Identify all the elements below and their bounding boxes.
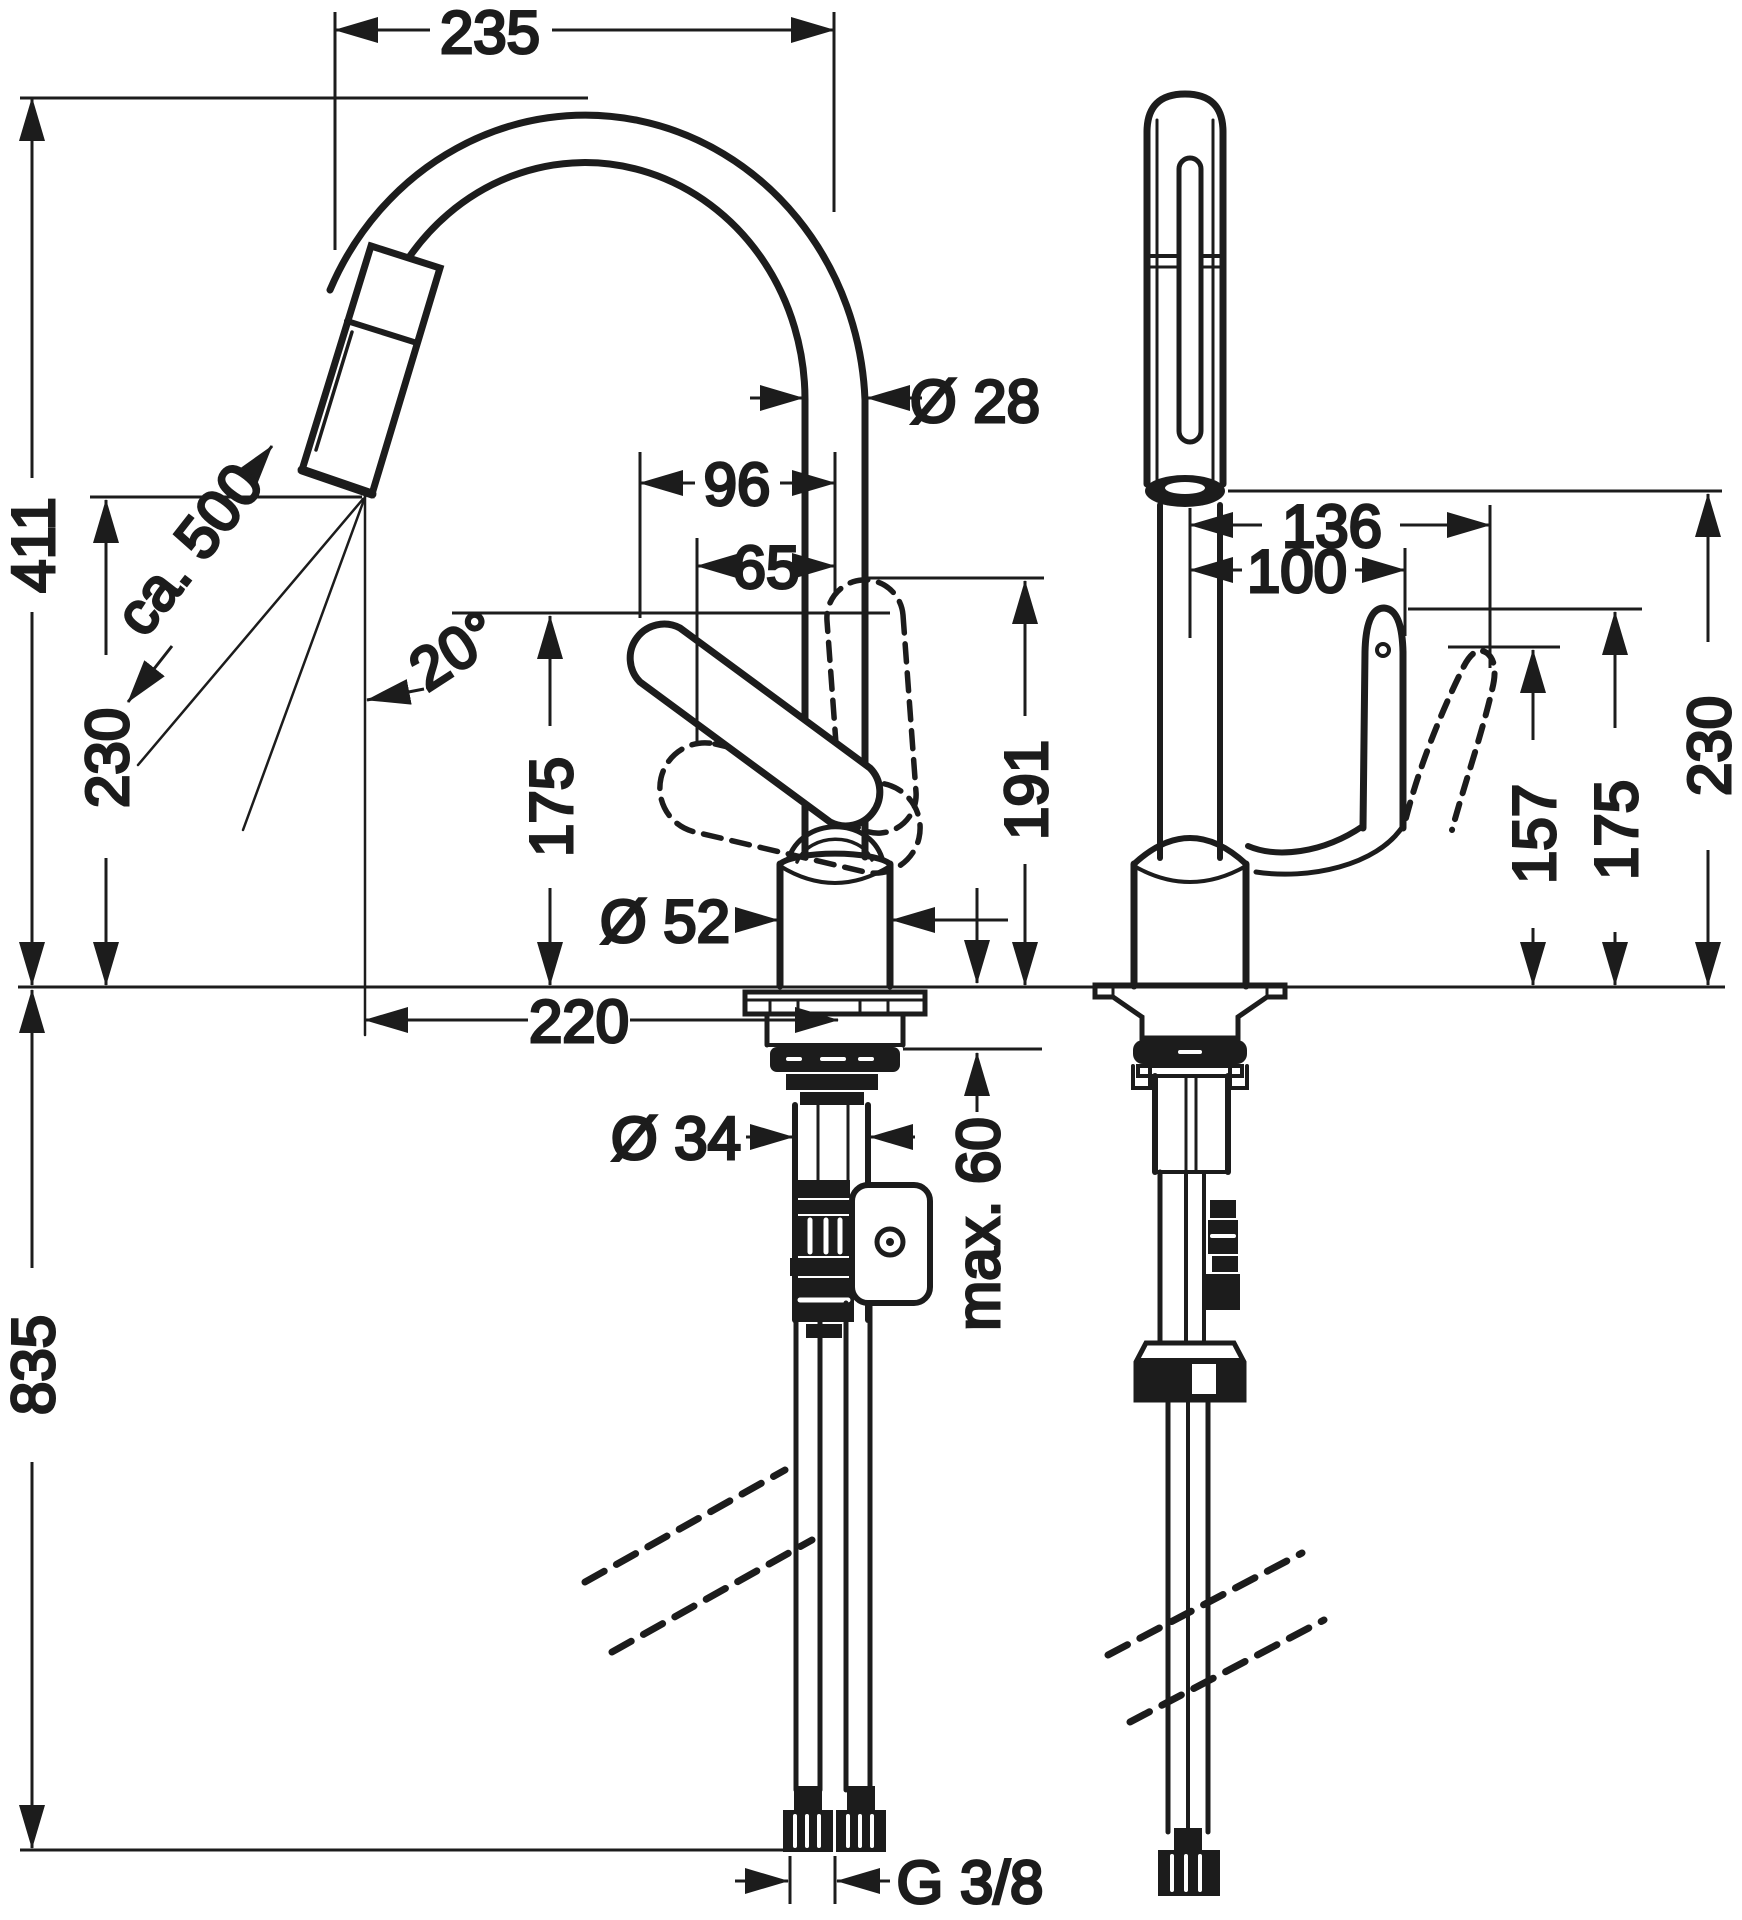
dim-shank-diameter-label: Ø 34: [611, 1105, 741, 1172]
flange-plate: [745, 992, 925, 1014]
dim-total-height: 411: [0, 98, 588, 985]
dim-175-front-label: 175: [518, 757, 585, 857]
side-handle-dashed: [1406, 651, 1495, 830]
dim-191: 191: [866, 578, 1060, 985]
dim-230-side-label: 230: [1676, 696, 1742, 796]
dim-body-diameter: Ø 52: [600, 888, 1008, 955]
technical-drawing-page: 235 411 230 ca. 500 20°: [0, 0, 1742, 1920]
dim-hose-length: ca. 500: [102, 446, 276, 702]
dim-835-label: 835: [0, 1315, 67, 1415]
dim-100-label: 100: [1247, 538, 1347, 605]
mounting-nut: [786, 1074, 878, 1090]
body-cap-arc: [780, 866, 890, 883]
break-line: [1130, 1620, 1324, 1722]
dim-hose-length-label: ca. 500: [102, 451, 276, 647]
dim-175-side-label: 175: [1583, 780, 1650, 880]
dim-thread-label: G 3/8: [897, 1849, 1044, 1916]
dim-96-label: 96: [704, 451, 771, 518]
dim-outlet-height: 230: [74, 497, 362, 985]
side-flange: [1095, 985, 1285, 1038]
dim-body-diameter-label: Ø 52: [600, 888, 730, 955]
spray-angle-line: [243, 497, 365, 830]
side-view: [1095, 94, 1495, 1896]
spray-head: [302, 246, 440, 494]
dim-spout-diameter: Ø 28: [750, 368, 1040, 435]
dim-spout-diameter-label: Ø 28: [910, 368, 1040, 435]
dim-total-height-label: 411: [0, 497, 67, 593]
break-line: [585, 1470, 785, 1582]
dim-65-label: 65: [733, 534, 800, 601]
front-view: [138, 115, 930, 1852]
break-line: [1108, 1553, 1302, 1655]
break-line: [612, 1540, 812, 1652]
side-handle-solid: [1363, 608, 1403, 828]
spout-arch-inner: [402, 163, 805, 400]
dim-outlet-height-label: 230: [74, 708, 141, 808]
dim-157: 157: [1448, 647, 1568, 985]
spray-selector-slot: [1179, 158, 1201, 442]
dim-max-counter-label: max. 60: [945, 1117, 1012, 1330]
dim-157-label: 157: [1501, 784, 1568, 884]
dim-191-label: 191: [993, 740, 1060, 840]
faucet-technical-drawing: 235 411 230 ca. 500 20°: [0, 0, 1742, 1920]
dim-projection-label: 220: [529, 988, 629, 1055]
dim-thread: G 3/8: [735, 1849, 1043, 1916]
dim-spout-reach: 235: [335, 0, 834, 250]
dim-spout-reach-label: 235: [440, 0, 540, 66]
handle-solid: [630, 624, 880, 826]
